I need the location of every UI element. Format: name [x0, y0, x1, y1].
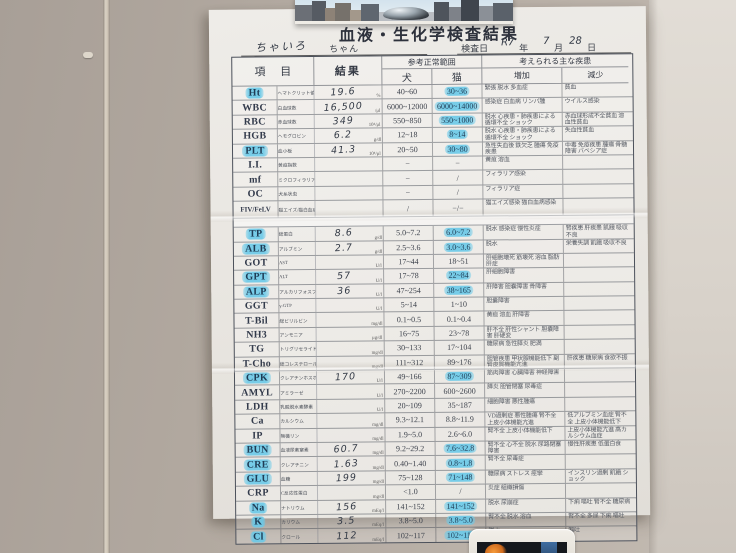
item-sublabel: γ-GTP	[279, 304, 292, 309]
decrease-diseases: ウイルス感染	[565, 99, 600, 106]
decrease-cell	[564, 253, 630, 267]
result-unit: mg/dl	[372, 350, 383, 355]
increase-cell: 腎不全 上皮小体機能低下	[485, 426, 565, 440]
patient-name-suffix: ちゃん	[329, 42, 359, 55]
item-sublabel: クレアチニン	[281, 461, 309, 468]
item-code: IP	[252, 430, 263, 441]
result-unit: mg/dl	[371, 321, 382, 326]
cat-range: 141~152	[444, 501, 476, 510]
decrease-cell	[565, 368, 631, 382]
result-value: 156	[336, 501, 358, 513]
item-code: GOT	[244, 258, 267, 269]
dog-range: 0.1~0.5	[397, 315, 421, 324]
item-code: T-Bil	[245, 315, 268, 326]
result-unit: mg/dl	[372, 437, 383, 442]
item-sublabel: 総ビリルビン	[279, 317, 307, 324]
cat-range-wrap: 38~165	[445, 285, 473, 294]
dog-range-cell: 5.0~7.2	[384, 226, 434, 240]
result-cell: 170U/l	[317, 370, 385, 384]
dog-range: 17~44	[398, 257, 418, 266]
increase-cell: 肝障害 胆嚢障害 骨障害	[484, 283, 564, 297]
decrease-cell: インスリン過剰 飢餓 ショック	[566, 469, 632, 483]
patient-name-line: ちゃいろ ちゃん	[241, 39, 427, 57]
decrease-cell: 腎不全 多尿 下痢 嘔吐	[566, 512, 632, 526]
building	[361, 4, 379, 21]
item-code: FIV/FeLV	[240, 206, 271, 214]
item-code: LDH	[246, 401, 269, 412]
building	[295, 5, 313, 21]
increase-cell: 肝細胞障害	[484, 268, 564, 282]
cat-range-cell: 600~2600	[435, 384, 485, 398]
result-unit: μg/dl	[373, 336, 383, 341]
dog-range: 102~117	[397, 531, 425, 540]
dog-range-cell: 40~60	[382, 85, 432, 99]
cat-range: /	[457, 188, 459, 197]
item-code: NH3	[246, 329, 267, 340]
header-item: 項 目	[232, 57, 314, 87]
item-sublabel: AST	[279, 260, 288, 265]
decrease-diseases: インスリン過剰 飢餓 ショック	[568, 470, 630, 483]
item-sublabel-cell: クレアチンホスホキナーゼ	[280, 371, 317, 385]
item-code: OC	[248, 188, 264, 199]
item-sublabel-cell: アミラーゼ	[280, 385, 317, 399]
dog-range: 47~254	[397, 286, 421, 295]
result-cell: mg/dl	[316, 313, 384, 327]
result-cell	[315, 186, 383, 200]
item-sublabel: 血小板	[278, 147, 292, 154]
decrease-cell	[565, 339, 631, 353]
increase-cell: 緊張 脱水 多血症	[482, 84, 562, 98]
item-sublabel-cell: ミクロフィラリア	[278, 172, 315, 186]
increase-cell: 脱水 尿崩症	[486, 498, 566, 512]
cat-range-wrap: 8~14	[447, 130, 467, 139]
result-unit: g/dl	[373, 137, 381, 142]
dog-range: −	[405, 174, 410, 183]
cat-range-cell: /	[433, 185, 483, 199]
cat-range-wrap: 0.8~1.8	[446, 458, 474, 467]
cat-range: /	[457, 173, 459, 182]
result-unit: mEq/l	[372, 509, 384, 514]
magnet-photo-blue-detail	[541, 542, 557, 553]
item-sublabel: クレアチンホスホキナーゼ	[280, 374, 317, 382]
item-code: RBC	[244, 116, 266, 127]
exam-date-line: 検査日 R7 年 7 月 28 日	[457, 37, 631, 55]
result-unit: mg/dl	[372, 422, 383, 427]
item-code: K	[251, 517, 265, 528]
dog-range: 30~133	[397, 344, 421, 353]
result-cell	[315, 157, 383, 171]
table-header: 項 目 結果 参考正常範囲 考えられる主な疾患 犬 猫 増加 減少	[232, 54, 632, 86]
item-code: CRE	[244, 459, 272, 470]
cat-range-cell: 23~78	[435, 326, 485, 340]
decrease-cell	[565, 325, 631, 339]
cat-range-cell: 6.0~7.2	[434, 226, 484, 240]
cat-range-cell: 0.8~1.8	[436, 456, 486, 470]
result-cell: mg/dl	[318, 486, 386, 500]
result-cell: mg/dl	[317, 342, 385, 356]
building	[434, 2, 449, 21]
item-sublabel-cell: 赤血球数	[278, 115, 315, 129]
decrease-cell	[564, 311, 630, 325]
dog-range-cell: 6000~12000	[383, 99, 433, 113]
item-sublabel-cell: AST	[279, 256, 316, 270]
decrease-cell: ウイルス感染	[563, 98, 629, 112]
dog-range: 75~128	[398, 473, 422, 482]
cat-range: 30~80	[445, 144, 469, 153]
item-sublabel-cell: アンモニア	[280, 328, 317, 342]
dog-range-cell: 5~14	[384, 298, 434, 312]
cat-range: 30~36	[445, 87, 469, 96]
result-cell: 60.7mg/dl	[318, 442, 386, 456]
cat-range-wrap: 30~80	[445, 144, 469, 153]
dog-range: 6000~12000	[387, 102, 427, 111]
cat-range-cell: 87~309	[435, 370, 485, 384]
header-decrease: 減少	[562, 67, 628, 84]
increase-diseases: 腎不全 脱水 溶血	[488, 514, 531, 521]
item-sublabel-cell: 総コレステロール	[280, 357, 317, 371]
item-code-cell: CRE	[236, 458, 281, 472]
cat-range-cell: −	[433, 156, 483, 170]
decrease-diseases: 低アルブミン血症 腎不全 上皮小体機能低下	[567, 412, 629, 425]
cat-range-wrap: −/−	[452, 203, 463, 212]
item-sublabel: 血糖	[281, 475, 290, 482]
item-sublabel-cell: 黄疸指数	[278, 158, 315, 172]
dog-range-cell: 20~109	[385, 399, 435, 413]
result-value: 3.5	[337, 515, 356, 527]
result-cell	[315, 172, 383, 186]
result-unit: U/l	[377, 379, 383, 384]
increase-diseases: 肝不全 肝性シャント 胆嚢障害 肝硬変	[487, 327, 562, 340]
result-unit: mg/dl	[373, 480, 384, 485]
decrease-cell: 嘔吐	[566, 527, 632, 541]
cat-range-wrap: 550~1000	[439, 116, 475, 125]
dog-range-cell: 20~50	[383, 143, 433, 157]
decrease-cell	[563, 155, 629, 169]
building	[493, 3, 513, 21]
building	[461, 0, 479, 21]
decrease-diseases: 腎疾患 肝疾患 飢餓 吸収不良	[566, 225, 628, 238]
item-sublabel-cell: カリウム	[281, 515, 318, 529]
result-unit: U/l	[376, 278, 382, 283]
building	[449, 7, 461, 21]
cat-range: −	[455, 159, 460, 168]
header-ref-range: 参考正常範囲	[382, 56, 482, 70]
dog-range-cell: 17~78	[384, 269, 434, 283]
item-sublabel-cell: 白血球数	[278, 100, 315, 114]
item-code-cell: AMYL	[235, 386, 280, 400]
cat-range-wrap: /	[459, 487, 461, 496]
item-code-cell: mf	[233, 173, 278, 187]
dog-range-cell: 75~128	[386, 471, 436, 485]
item-code-cell: IP	[235, 429, 280, 443]
result-value: 60.7	[333, 443, 359, 456]
decrease-diseases: 中毒 免疫疾患 腫瘍 骨髄障害 バベシア症	[565, 142, 627, 155]
item-code: TP	[246, 229, 265, 240]
dog-range-cell: 9.3~12.1	[385, 413, 435, 427]
dog-range-cell: <1.0	[386, 485, 436, 499]
wall-panel-seam	[103, 0, 110, 553]
item-code-cell: PLT	[233, 144, 278, 158]
item-sublabel-cell: 乳酸脱水素酵素	[280, 400, 317, 414]
cat-range-wrap: 23~78	[449, 329, 469, 338]
cat-range-wrap: 6.0~7.2	[444, 228, 472, 237]
cat-range: 550~1000	[439, 116, 475, 125]
cat-range-wrap: 87~309	[445, 372, 473, 381]
increase-diseases: 筋肉障害 心臓障害 神経障害	[487, 370, 559, 377]
item-code: Ht	[246, 88, 264, 99]
item-sublabel-cell: トリグリセライド	[280, 342, 317, 356]
item-code-cell: TP	[234, 227, 279, 241]
increase-cell: 筋肉障害 心臓障害 神経障害	[485, 369, 565, 383]
decrease-cell	[564, 296, 630, 310]
increase-diseases: 脱水 心疾患・肺疾患による循環不全 ショック	[485, 128, 560, 141]
item-code-cell: TG	[235, 343, 280, 357]
header-result: 結果	[314, 56, 382, 86]
cat-range-cell: 0.1~0.4	[434, 312, 484, 326]
cat-range-wrap: 17~104	[447, 343, 471, 352]
cat-range: 18~51	[448, 257, 468, 266]
item-code: BUN	[244, 445, 272, 456]
decrease-diseases: 失血性貧血	[565, 128, 594, 135]
dog-range: 40~60	[397, 87, 417, 96]
item-sublabel: カルシウム	[280, 417, 303, 424]
result-unit: 10⁴/μl	[369, 123, 381, 128]
item-sublabel: アンモニア	[280, 331, 303, 338]
dog-range: 49~166	[397, 372, 421, 381]
result-unit: /μl	[375, 108, 380, 113]
item-sublabel-cell: クロール	[281, 529, 318, 543]
increase-cell: 肝不全 肝性シャント 胆嚢障害 肝硬変	[485, 326, 565, 340]
cat-range-wrap: 1~10	[451, 300, 467, 309]
increase-cell: 感染症 白血病 リンパ腫	[483, 98, 563, 112]
item-sublabel-cell: ALT	[279, 270, 316, 284]
item-sublabel: ミクロフィラリア	[278, 176, 315, 183]
increase-cell: 胆嚢障害	[484, 297, 564, 311]
increase-diseases: 黄疸 溶血	[485, 157, 510, 164]
cat-range-cell: 38~165	[434, 283, 484, 297]
decrease-cell: 赤血球形成不全貧血 溶血性貧血	[563, 112, 629, 126]
result-value: 199	[335, 472, 357, 484]
item-sublabel: ナトリウム	[281, 504, 304, 511]
item-sublabel: 乳酸脱水素酵素	[280, 403, 313, 410]
increase-diseases: 感染症 白血病 リンパ腫	[485, 99, 546, 106]
result-cell: 1.63mg/dl	[318, 457, 386, 471]
decrease-cell	[564, 282, 630, 296]
dog-range-cell: 17~44	[384, 255, 434, 269]
increase-cell: 脱水	[484, 239, 564, 253]
magnet-photo-orange-detail	[485, 544, 507, 553]
item-code-cell: BUN	[236, 443, 281, 457]
result-value: 2.7	[335, 242, 354, 254]
increase-cell: 細胞障害 悪性腫瘍	[485, 398, 565, 412]
item-code-cell: Na	[236, 501, 281, 515]
decrease-diseases: 栄養失調 飢餓 吸収不良	[566, 240, 627, 247]
lab-report-paper: 血液・生化学検査結果 ちゃいろ ちゃん 検査日 R7 年 7 月 28 日 項 …	[209, 6, 650, 519]
item-sublabel-cell: 血小板	[278, 144, 315, 158]
item-code: CPK	[243, 373, 271, 384]
table-body: Htヘマトクリット値19.6%40~6030~36緊張 脱水 多血症貧血WBC白…	[232, 83, 636, 543]
cat-range: 600~2600	[443, 386, 475, 395]
cat-range-cell: /	[436, 485, 486, 499]
exam-date-day: 28	[569, 36, 582, 47]
item-sublabel-cell: 猫エイズ/猫白血病	[278, 201, 315, 217]
cat-range: 87~309	[445, 372, 473, 381]
result-value: 16,500	[323, 100, 363, 113]
item-code: GLU	[244, 473, 273, 484]
increase-diseases: 肝障害 胆嚢障害 骨障害	[486, 284, 547, 291]
cat-range-cell: 89~176	[435, 355, 485, 369]
item-sublabel: 総コレステロール	[280, 360, 317, 367]
increase-diseases: 糖尿病 急性膵炎 肥満	[487, 341, 542, 348]
cat-range-wrap: 18~51	[448, 257, 468, 266]
increase-cell: 炎症 組織損傷	[486, 484, 566, 498]
cat-range-cell: 30~80	[433, 142, 483, 156]
dog-range-cell: 0.40~1.40	[386, 456, 436, 470]
building	[325, 8, 335, 21]
dog-range-cell: 12~18	[383, 128, 433, 142]
dog-range-cell: /	[383, 200, 433, 216]
result-cell: mg/dl	[317, 356, 385, 370]
item-code-cell: FIV/FeLV	[233, 201, 278, 217]
dog-range: 9.3~12.1	[396, 415, 424, 424]
item-sublabel: ヘマトクリット値	[277, 89, 314, 96]
cat-range: 3.8~5.0	[447, 516, 475, 525]
header-cat: 猫	[432, 69, 482, 85]
dog-range-cell: 550~850	[383, 114, 433, 128]
decrease-cell: 上皮小体機能亢進 高カルシウム血症	[565, 426, 631, 440]
increase-diseases: フィラリア感染	[485, 172, 526, 179]
increase-diseases: 肝細胞壊死 筋壊死 溶血 脂肪肝症	[486, 255, 561, 268]
cat-range: 89~176	[447, 357, 471, 366]
cat-range-cell: −/−	[433, 200, 483, 216]
cat-range-cell: 550~1000	[433, 113, 483, 127]
building	[312, 1, 326, 21]
item-code: GGT	[245, 301, 268, 312]
cat-range: 35~187	[448, 401, 472, 410]
dog-range-cell: 270~2200	[385, 384, 435, 398]
result-value: 6.2	[334, 130, 353, 142]
item-code-cell: Ht	[232, 86, 277, 100]
item-code: T-Cho	[243, 358, 271, 369]
item-sublabel: カリウム	[281, 518, 300, 525]
increase-cell: 猫エイズ感染 猫白血病感染	[483, 199, 563, 216]
increase-cell: フィラリア感染	[483, 170, 563, 184]
result-unit: %	[377, 94, 381, 99]
item-code-cell: CPK	[235, 371, 280, 385]
cat-range: /	[459, 487, 461, 496]
item-code: Ca	[251, 416, 264, 427]
result-cell: 8.6g/dl	[316, 227, 384, 241]
item-sublabel-cell: アルブミン	[279, 242, 316, 256]
dog-range-cell: 1.9~5.0	[385, 428, 435, 442]
cat-range-wrap: 7.6~32.8	[444, 444, 476, 453]
increase-diseases: 膵炎 胆管閉塞 尿毒症	[487, 384, 542, 391]
cat-range: 22~84	[446, 271, 470, 280]
item-sublabel: ヘモグロビン	[278, 132, 306, 139]
increase-cell: 胆管疾患 甲状腺機能低下 副腎皮質機能亢進	[485, 354, 565, 368]
result-cell: 19.6%	[314, 85, 382, 99]
decrease-cell	[563, 170, 629, 184]
increase-cell: 脱水 感染症 慢性炎症	[484, 225, 564, 239]
dog-range-cell: 3.8~5.0	[386, 514, 436, 528]
increase-diseases: 胆管疾患 甲状腺機能低下 副腎皮質機能亢進	[487, 355, 562, 368]
cat-range: 0.1~0.4	[447, 314, 471, 323]
item-code-cell: Cl	[236, 530, 281, 544]
cat-range-cell: 7.6~32.8	[436, 442, 486, 456]
result-value: 8.6	[335, 228, 354, 240]
item-sublabel: アミラーゼ	[280, 389, 303, 396]
item-code-cell: GGT	[234, 299, 279, 313]
item-sublabel-cell: ヘモグロビン	[278, 129, 315, 143]
result-cell: 112mEq/l	[318, 529, 386, 543]
item-sublabel-cell: クレアチニン	[281, 457, 318, 471]
cat-range-wrap: 3.0~3.6	[444, 242, 472, 251]
magnet-photo	[477, 542, 567, 553]
item-sublabel-cell: ナトリウム	[281, 501, 318, 515]
item-sublabel: 犬糸状虫	[278, 190, 297, 197]
decrease-cell: 失血性貧血	[563, 126, 629, 140]
dog-range: −	[406, 188, 411, 197]
increase-cell: 腎不全 脱水 溶血	[486, 513, 566, 527]
result-cell: U/l	[316, 255, 384, 269]
result-cell: 6.2g/dl	[315, 129, 383, 143]
dog-range: 111~312	[395, 358, 423, 367]
cat-range-wrap: 3.8~5.0	[447, 516, 475, 525]
item-sublabel: 赤血球数	[278, 118, 297, 125]
item-sublabel-cell: 総蛋白	[279, 227, 316, 241]
result-cell: mg/dl	[317, 414, 385, 428]
result-unit: mg/dl	[373, 494, 384, 499]
result-unit: g/dl	[374, 235, 382, 240]
item-code: WBC	[242, 102, 267, 113]
result-value: 1.63	[333, 458, 359, 471]
dog-range-cell: −	[383, 157, 433, 171]
item-sublabel: クロール	[281, 533, 300, 540]
item-sublabel-cell: アルカリフォスファターゼ	[279, 285, 316, 299]
cat-range-cell: 1~10	[434, 298, 484, 312]
cat-range: 0.8~1.8	[446, 458, 474, 467]
result-unit: 10⁴/μl	[369, 152, 381, 157]
item-sublabel: 猫エイズ/猫白血病	[279, 206, 316, 213]
decrease-cell	[565, 397, 631, 411]
item-sublabel-cell: 犬糸状虫	[278, 187, 315, 201]
item-code-cell: HGB	[233, 129, 278, 143]
cat-range-wrap: 6000~14000	[435, 101, 479, 110]
item-code-cell: GPT	[234, 271, 279, 285]
item-sublabel: アルブミン	[279, 245, 302, 252]
decrease-diseases: 赤血球形成不全貧血 溶血性貧血	[565, 113, 627, 126]
result-cell: 199mg/dl	[318, 471, 386, 485]
increase-diseases: 糖尿病 ストレス 痙攣	[488, 471, 543, 478]
item-sublabel-cell: 血液尿素窒素	[281, 443, 318, 457]
cat-range: 71~148	[446, 473, 474, 482]
cat-range: 8.8~11.9	[446, 415, 474, 424]
dog-range: 9.2~29.2	[396, 444, 424, 453]
result-unit: mg/dl	[372, 365, 383, 370]
increase-diseases: 細胞障害 悪性腫瘍	[487, 399, 535, 406]
header-diseases: 考えられる主な疾患	[482, 54, 628, 68]
result-value: 112	[336, 530, 358, 542]
result-unit: U/l	[377, 393, 383, 398]
cat-range-wrap: 22~84	[446, 271, 470, 280]
decrease-cell: 肝疾患 糖尿病 食欲不振	[565, 354, 631, 368]
dog-range-cell: 49~166	[385, 370, 435, 384]
cat-range-wrap: /	[457, 173, 459, 182]
dog-range-cell: −	[383, 186, 433, 200]
dog-range-cell: 0.1~0.5	[384, 312, 434, 326]
dog-range: 1.9~5.0	[398, 430, 422, 439]
item-sublabel-cell: C反応性蛋白	[281, 486, 318, 500]
